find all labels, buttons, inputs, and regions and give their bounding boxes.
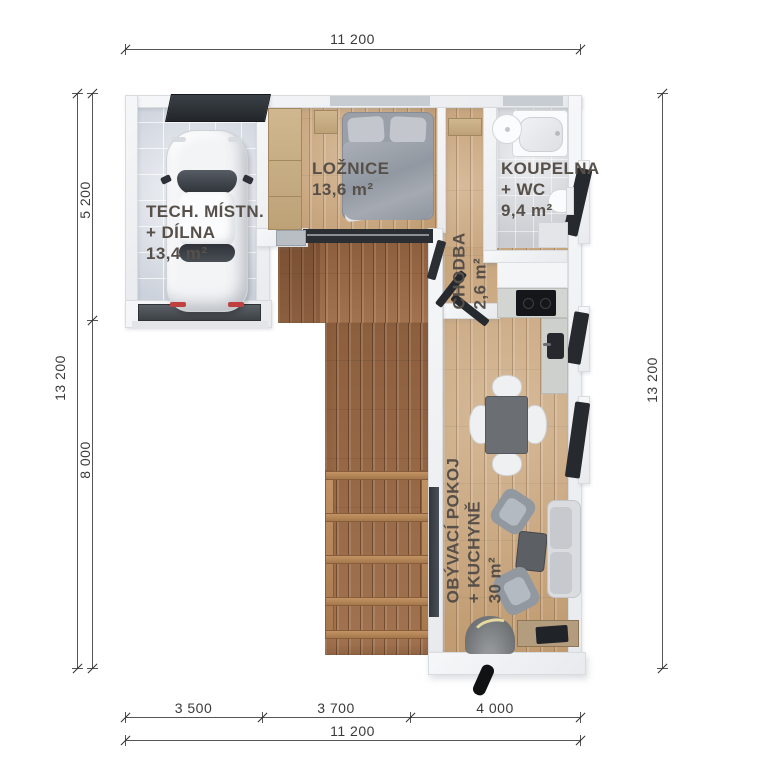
dim-left-total-label: 13 200 xyxy=(52,350,68,406)
dim-top-label: 11 200 xyxy=(125,31,580,47)
dim-bottom-line-2 xyxy=(125,740,580,741)
corridor-shelf xyxy=(448,118,482,136)
bathroom-name: KOUPELNA xyxy=(501,158,600,179)
pergola-beam xyxy=(325,630,430,639)
pergola-beam xyxy=(325,555,430,564)
dim-left-lower-label: 8 000 xyxy=(77,432,93,488)
living-name: OBÝVACÍ POKOJ xyxy=(443,457,464,603)
wall-garage-west xyxy=(125,95,138,325)
washbasin-drain xyxy=(505,127,510,132)
wardrobe-door-split-2 xyxy=(268,196,302,197)
bedroom-sliding-door-glass xyxy=(307,234,429,236)
bathroom-area: 9,4 m² xyxy=(501,200,600,221)
dim-bottom-seg3-label: 4 000 xyxy=(410,700,580,716)
bedroom-area: 13,6 m² xyxy=(312,179,389,200)
kitchen-upper-cabinets xyxy=(497,262,568,288)
terrace-deck-shade xyxy=(278,243,320,323)
sofa-cushion xyxy=(550,552,572,594)
tv-sideboard xyxy=(517,620,579,647)
tech-room-name2: + DÍLNA xyxy=(146,222,264,243)
floor-plan-canvas: TECH. MÍSTN. + DÍLNA 13,4 m² LOŽNICE 13,… xyxy=(0,0,768,768)
dim-bottom-line-1 xyxy=(125,717,580,718)
nightstand xyxy=(314,110,338,134)
living-name2: + KUCHYNĚ xyxy=(464,457,485,603)
pergola-beam xyxy=(325,513,430,522)
bedroom-north-window xyxy=(330,96,430,106)
pergola-beam xyxy=(325,471,430,480)
dim-bottom-seg2-label: 3 700 xyxy=(262,700,410,716)
car-headlight-left xyxy=(172,137,186,142)
sofa xyxy=(547,500,581,598)
cooktop xyxy=(516,290,556,316)
hall-area: 2,6 m² xyxy=(469,232,490,309)
sofa-cushion xyxy=(550,507,572,549)
bedroom-name: LOŽNICE xyxy=(312,158,389,179)
cooktop-burner xyxy=(523,298,534,309)
dim-top-line xyxy=(125,49,580,50)
living-area: 30 m² xyxy=(485,457,506,603)
bathroom-north-window xyxy=(503,96,563,106)
pergola-beam xyxy=(325,597,430,606)
dim-bottom-seg1-label: 3 500 xyxy=(125,700,262,716)
garage-door-sill xyxy=(132,321,268,329)
bed-pillow-right xyxy=(388,115,427,145)
wardrobe-door-split-1 xyxy=(268,160,302,161)
garage-entry-canopy xyxy=(165,94,271,122)
bathroom-name2: + WC xyxy=(501,179,600,200)
car-headlight-right xyxy=(228,137,242,142)
dim-bottom-total-label: 11 200 xyxy=(125,723,580,739)
dim-right-line xyxy=(662,93,663,668)
living-label-lines: OBÝVACÍ POKOJ + KUCHYNĚ 30 m² xyxy=(443,457,506,603)
tv xyxy=(535,625,568,644)
hall-label-lines: CHODBA 2,6 m² xyxy=(448,232,490,309)
car-windshield xyxy=(177,170,237,194)
dim-left-upper-label: 5 200 xyxy=(77,172,93,228)
wall-corridor-west xyxy=(437,107,446,233)
cooktop-burner xyxy=(540,298,551,309)
hall-name: CHODBA xyxy=(448,232,469,309)
shower-mat xyxy=(538,222,568,248)
dim-right-total-label: 13 200 xyxy=(644,352,660,408)
label-bedroom: LOŽNICE 13,6 m² xyxy=(312,158,389,200)
car-taillight-left xyxy=(170,302,186,307)
bed-pillow-left xyxy=(346,115,386,146)
label-living-room: OBÝVACÍ POKOJ + KUCHYNĚ 30 m² xyxy=(432,424,516,636)
sink-faucet xyxy=(543,343,551,346)
bedroom-south-bench xyxy=(276,230,306,246)
car-taillight-right xyxy=(228,302,244,307)
wall-south xyxy=(428,652,586,675)
bathtub-drain xyxy=(555,131,560,136)
washbasin xyxy=(492,114,522,144)
bedroom-sliding-door xyxy=(303,229,433,243)
label-bathroom: KOUPELNA + WC 9,4 m² xyxy=(501,158,600,221)
tech-room-area: 13,4 m² xyxy=(146,243,264,264)
kitchen-sink xyxy=(547,333,564,359)
label-tech-room: TECH. MÍSTN. + DÍLNA 13,4 m² xyxy=(146,201,264,264)
label-hall: CHODBA 2,6 m² xyxy=(433,225,505,317)
wardrobe xyxy=(268,108,302,230)
tech-room-name: TECH. MÍSTN. xyxy=(146,201,264,222)
